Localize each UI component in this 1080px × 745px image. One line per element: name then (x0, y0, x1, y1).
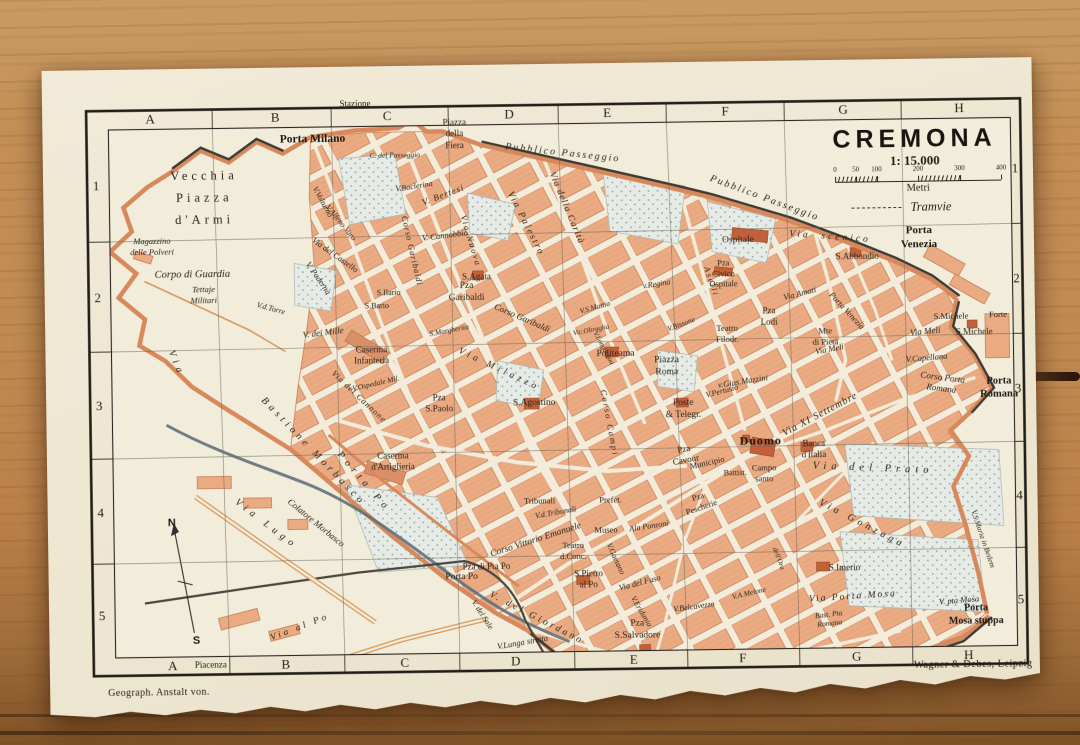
map-label: S.Agostino (513, 398, 556, 410)
photo-of-antique-map: AABBCCDDEEFFGGHH1122334455 Porta MilanoV… (0, 0, 1080, 745)
map-paper-wrapper: AABBCCDDEEFFGGHH1122334455 Porta MilanoV… (42, 57, 1041, 721)
legend-tramways-label: Tramvie (910, 199, 951, 215)
scale-tick-label: 50 (852, 166, 859, 174)
grid-number: 5 (1018, 591, 1025, 607)
map-label: Tribunali (524, 496, 555, 507)
map-label: S.Bario (365, 301, 389, 311)
scale-segment (918, 175, 960, 181)
map-title: CREMONA (828, 124, 1000, 155)
map-label: Teatro d.Conc. (560, 540, 587, 562)
map-label: S (193, 635, 201, 649)
grid-letter: G (852, 649, 862, 665)
map-label: Piazza Roma (654, 355, 679, 379)
map-label: Pza Garibaldi (449, 281, 485, 305)
scale-tick-label: 300 (954, 164, 965, 172)
map-label: Corpo di Guardia (155, 268, 231, 282)
map-label: S.Michele (956, 326, 993, 338)
scale-bar-ticks: 050100200300400 (835, 164, 1001, 175)
map-label: Pza Lodi (760, 305, 777, 328)
map-label: Pza Civico Ospitale (709, 257, 738, 289)
map-label: S.Pietro al Po (574, 568, 603, 591)
map-label: S.Agata (462, 271, 491, 283)
map-label: Duomo (739, 433, 782, 449)
scale-unit: Metri (835, 182, 1001, 195)
legend-tramways: Tramvie (851, 199, 951, 215)
map-label: S.Imerio (829, 562, 860, 574)
map-label: Porta Romana (980, 374, 1018, 401)
map-label: Magazzino delle Polveri (130, 235, 174, 257)
scale-tick-mark (918, 176, 919, 181)
map-label: Porta Po (445, 572, 478, 584)
tramway-line-symbol (851, 207, 901, 209)
map-label: Piazza della Fiera (442, 117, 466, 151)
grid-letter: G (838, 102, 848, 118)
scale-tick-label: 100 (871, 165, 882, 173)
map-label: C. del Passeggio (369, 150, 420, 160)
grid-letter: D (504, 106, 514, 122)
piacenza-direction-label: Piacenza (195, 659, 227, 669)
grid-letter: B (281, 657, 290, 673)
grid-letter: F (721, 103, 728, 119)
map-label: Forte (989, 309, 1007, 320)
map-label: Prefet. (599, 495, 622, 506)
scale-tick-mark (960, 175, 961, 180)
scale-segment (960, 175, 1002, 181)
grid-number: 3 (96, 398, 103, 414)
map-label: Porta Milano (280, 132, 346, 147)
grid-letter: A (145, 111, 155, 127)
grid-number: 2 (1013, 270, 1020, 286)
grid-letter: B (271, 110, 280, 126)
scale-tick-label: 200 (913, 165, 924, 173)
map-label: Porta Mosa stuppa (949, 602, 1004, 628)
grid-number: 1 (93, 178, 100, 194)
scale-tick-label: 400 (996, 163, 1007, 171)
map-label: Museo (594, 525, 617, 536)
map-label: Caserma d'Artiglieria (371, 451, 415, 474)
map-label: Pza S.Paolo (425, 392, 453, 415)
map-label: Vecchia Piazza d'Armi (170, 165, 238, 232)
map-label: Campo santo (752, 462, 777, 484)
map-label: Battist. (724, 468, 747, 478)
map-label: Tettaje Militari (190, 284, 217, 306)
map-label: S.Michele (934, 311, 969, 322)
grid-number: 4 (1016, 487, 1023, 503)
map-label: Pza di Pta Po (463, 561, 511, 573)
imprint-left: Geograph. Anstalt von. (108, 687, 210, 699)
grid-letter: C (400, 655, 409, 671)
map-label: Teatro Filodr. (716, 323, 739, 345)
map-label: Poste & Telegr. (665, 398, 701, 422)
grid-letter: D (511, 653, 521, 669)
grid-letter: H (954, 100, 964, 116)
scale-tick-label: 0 (833, 166, 837, 174)
grid-number: 2 (94, 290, 101, 306)
map-label: Banca d'Italia (801, 438, 826, 461)
scale-tick-mark (856, 177, 857, 182)
scale-tick-mark (877, 176, 878, 181)
station-label: Stazione (339, 98, 370, 108)
scale-segment (877, 176, 919, 182)
grid-number: 5 (99, 608, 106, 624)
scale-tick-mark (835, 177, 836, 182)
grid-number: 1 (1012, 160, 1019, 176)
imprint-right: Wagner & Debes, Leipzig (914, 658, 1033, 671)
map-label: S.Abbondio (835, 251, 878, 263)
grid-letter: C (383, 108, 392, 124)
grid-letter: A (168, 658, 178, 674)
map-label: S.Ilario (377, 288, 401, 298)
grid-letter: F (739, 650, 746, 666)
map-paper: AABBCCDDEEFFGGHH1122334455 Porta MilanoV… (42, 57, 1041, 721)
scale-tick-mark (1001, 175, 1002, 180)
grid-letter: E (603, 105, 611, 121)
map-label: Bast. Pta Romana (814, 608, 844, 630)
scale-bar: 050100200300400 Metri (835, 164, 1001, 196)
map-label: Caserma Infanteria (354, 344, 389, 367)
map-label: N (168, 517, 176, 531)
grid-number: 4 (97, 505, 104, 521)
map-label: Porta Venezia (901, 224, 938, 252)
map-label: Ospitale (722, 235, 754, 247)
grid-letter: E (630, 652, 638, 668)
wood-grain-line (0, 731, 1080, 735)
